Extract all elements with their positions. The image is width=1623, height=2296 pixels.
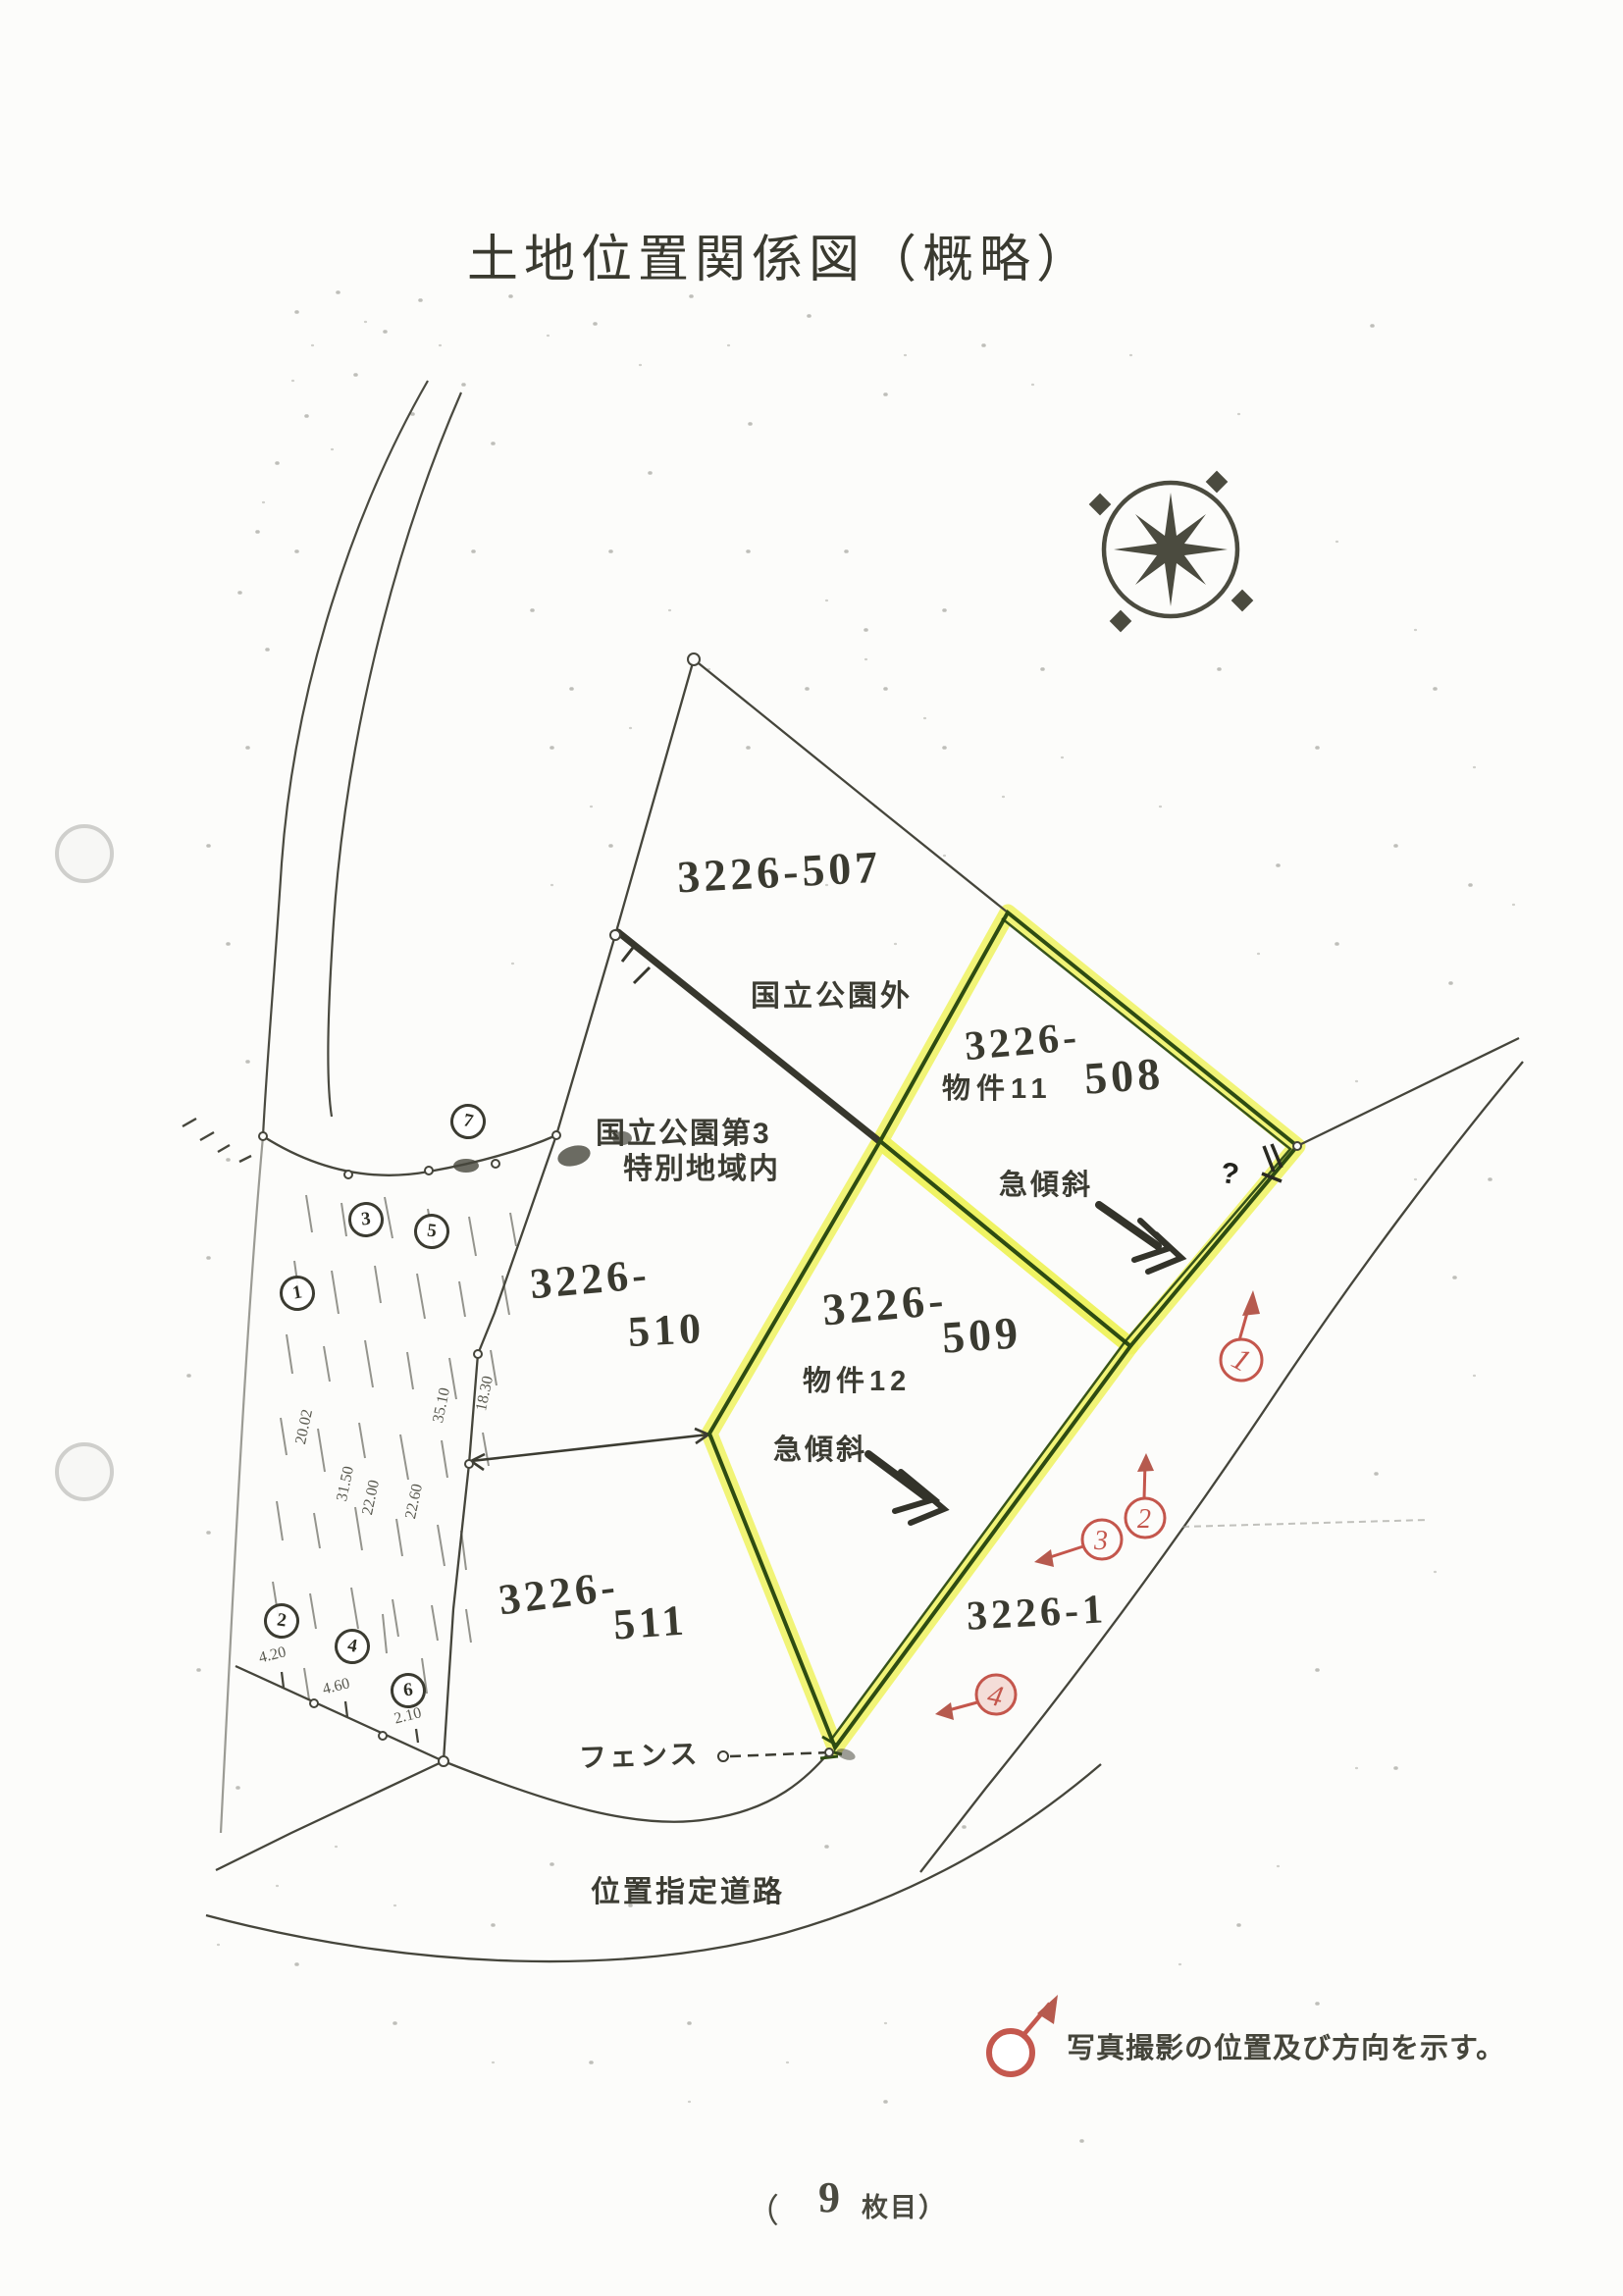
survey-point-number: 6 — [402, 1679, 414, 1701]
outside-park-label: 国立公園外 — [751, 971, 913, 1015]
photo-marker-3: 3 — [1034, 1520, 1122, 1567]
bottom-road-north-edge — [216, 1752, 829, 1870]
svg-text:2: 2 — [1137, 1504, 1151, 1535]
designated-road-label: 位置指定道路 — [591, 1867, 785, 1910]
survey-arrow-510-511 — [471, 1429, 708, 1470]
legend-text: 写真撮影の位置及び方向を示す。 — [1067, 2025, 1505, 2066]
survey-point-number: 5 — [426, 1221, 438, 1243]
svg-text:1: 1 — [1227, 1340, 1257, 1379]
parcel-510-north-link — [556, 935, 615, 1135]
property-12-label: 物件12 — [803, 1358, 911, 1399]
faint-dashed-line — [1182, 1520, 1428, 1527]
left-road — [221, 381, 461, 1833]
parcel-509-label-line1: 3226- — [820, 1274, 949, 1336]
survey-point-number: 1 — [290, 1281, 303, 1304]
footer-suffix: 枚目） — [862, 2186, 947, 2224]
survey-point-number: 4 — [345, 1635, 358, 1657]
photo-markers: 1 2 3 4 — [935, 1290, 1262, 2074]
parcel-511-label-line2: 511 — [611, 1594, 689, 1649]
parcel-510-west-boundary — [444, 1135, 556, 1761]
steep-slope-lower-label: 急傾斜 — [773, 1427, 867, 1468]
parcel-510-label-line1: 3226- — [528, 1249, 653, 1309]
fence-leader — [718, 1751, 829, 1761]
bottom-road-south-edge — [206, 1764, 1101, 1961]
photo-marker-1: 1 — [1221, 1290, 1262, 1381]
parcel-508-label-line2: 508 — [1082, 1047, 1165, 1105]
inside-park-label-line2: 特別地域内 — [623, 1144, 780, 1187]
photo-marker-2: 2 — [1126, 1453, 1165, 1538]
parcel-509-label-line2: 509 — [940, 1306, 1022, 1364]
survey-point-number: 7 — [461, 1110, 475, 1132]
survey-point-number: 3 — [360, 1209, 372, 1231]
parcel-510-label-line2: 510 — [627, 1303, 707, 1357]
hatch-strokes — [273, 1195, 516, 1699]
page-title: 土地位置関係図（概略） — [467, 218, 1093, 291]
site-plan-drawing: 1 2 3 4 — [0, 0, 1623, 2296]
footer-open-paren: （ — [746, 2184, 779, 2232]
page-footer: （ 9 枚目） — [746, 2170, 1001, 2239]
footer-page-number: 9 — [818, 2172, 840, 2222]
photo-marker-4: 4 — [935, 1675, 1016, 1720]
steep-slope-upper-label: 急傾斜 — [999, 1162, 1093, 1203]
scan-noise — [188, 292, 1514, 2141]
fence-label: フェンス — [578, 1733, 701, 1776]
northeast-boundary-extension — [1297, 1038, 1519, 1146]
property-11-label: 物件11 — [942, 1066, 1053, 1107]
parcel-3226-1-label: 3226-1 — [966, 1586, 1108, 1640]
svg-text:3: 3 — [1093, 1526, 1108, 1556]
survey-point-number: 2 — [276, 1609, 288, 1632]
scanned-document-page: 1 2 3 4 — [0, 0, 1623, 2296]
steep-slope-arrow-upper — [1099, 1205, 1181, 1272]
steep-slope-arrow-lower — [868, 1454, 944, 1523]
parcel-508-label-line1: 3226- — [963, 1014, 1082, 1070]
parcel-507-label: 3226-507 — [676, 841, 883, 904]
compass-rose-icon — [1089, 471, 1254, 633]
legend-photo-marker-icon — [989, 1995, 1058, 2074]
